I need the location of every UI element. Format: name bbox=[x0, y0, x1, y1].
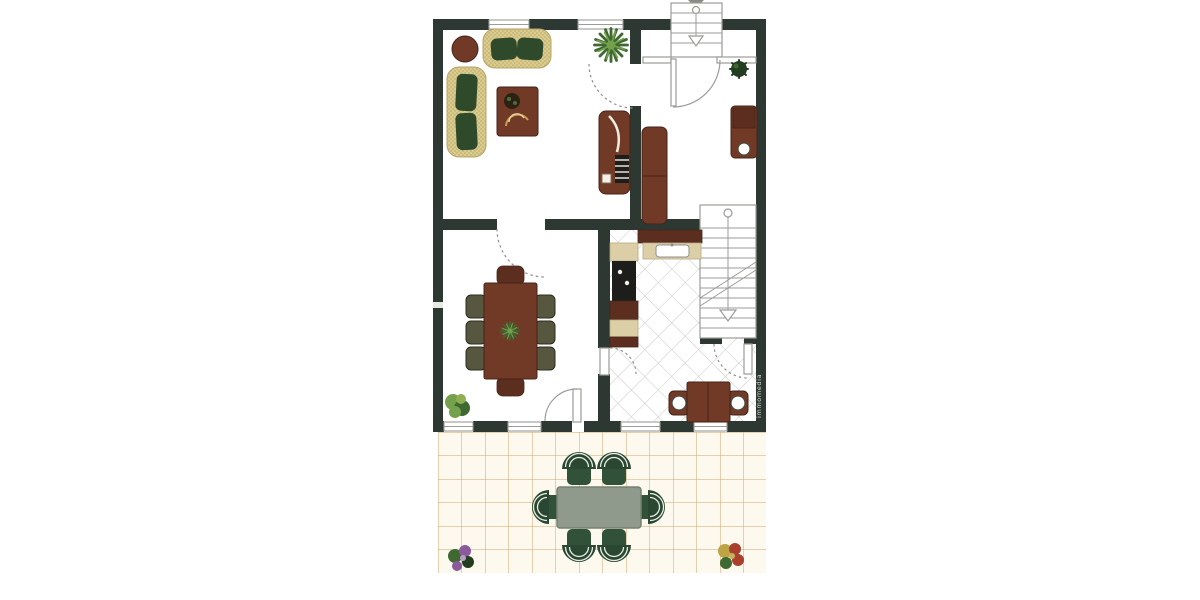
dining-patio-door-arc bbox=[545, 389, 577, 421]
exterior-stairs bbox=[671, 0, 722, 57]
window-bottom-1 bbox=[444, 422, 473, 431]
flower-pot-right bbox=[718, 543, 744, 569]
round-side-table bbox=[452, 36, 478, 62]
wall-left bbox=[433, 19, 443, 432]
garden-chair-bottom-left bbox=[562, 529, 596, 562]
wall-living-dining-left bbox=[443, 219, 497, 230]
window-bottom-3 bbox=[621, 422, 660, 431]
dining-chair-bottom bbox=[497, 377, 524, 396]
dining-chair-right-1 bbox=[535, 295, 555, 318]
media-sideboard bbox=[599, 111, 630, 194]
wall-living-hall bbox=[630, 106, 641, 219]
kitchen-counter-top-wall bbox=[638, 230, 702, 243]
dining-chair-right-3 bbox=[535, 347, 555, 370]
wall-dining-kitchen-lower bbox=[598, 374, 610, 421]
window-top-2 bbox=[578, 20, 623, 29]
floor-plan-drawing: immomedia bbox=[0, 0, 1200, 600]
hall-plant bbox=[730, 60, 748, 78]
hall-desk bbox=[731, 106, 757, 158]
dining-kitchen-door-leaf bbox=[600, 348, 609, 375]
watermark-text: immomedia bbox=[755, 374, 763, 418]
wall-bottom-5 bbox=[660, 421, 694, 432]
wall-bottom-6 bbox=[727, 421, 766, 432]
interior-staircase bbox=[700, 205, 756, 338]
sideboard-stripe-panel bbox=[615, 155, 629, 183]
decor-bowl bbox=[504, 93, 520, 109]
understair-door-leaf bbox=[744, 344, 752, 374]
garden-chair-bottom-right bbox=[597, 529, 631, 562]
living-hall-door-arc bbox=[589, 64, 633, 108]
coffee-table bbox=[497, 87, 538, 136]
wall-bottom-1 bbox=[433, 421, 444, 432]
dining-patio-door-leaf bbox=[573, 389, 581, 422]
garden-chair-top-left bbox=[562, 452, 596, 485]
dining-chair-top bbox=[497, 266, 524, 285]
breakfast-seat-right bbox=[731, 396, 745, 410]
wall-bottom-4 bbox=[584, 421, 621, 432]
wall-left-vent-notch bbox=[433, 302, 443, 308]
wall-living-dining-right bbox=[545, 219, 700, 230]
dining-chair-right-2 bbox=[535, 321, 555, 344]
dining-chair-left-2 bbox=[466, 321, 486, 344]
patio bbox=[438, 432, 766, 573]
stairs-start-marker bbox=[693, 7, 700, 14]
dining-chair-left-3 bbox=[466, 347, 486, 370]
dining-chair-left-1 bbox=[466, 295, 486, 318]
kitchen-counter-left-run bbox=[610, 243, 638, 347]
entry-partition-left bbox=[643, 57, 671, 63]
wall-top-2 bbox=[529, 19, 578, 30]
living-room bbox=[447, 27, 630, 194]
kitchen-sink bbox=[656, 245, 689, 257]
wall-right bbox=[756, 19, 766, 432]
window-top-1 bbox=[489, 20, 529, 29]
staircase-start-marker bbox=[724, 209, 732, 217]
entry-door-leaf bbox=[671, 59, 676, 106]
kitchen-faucet bbox=[671, 244, 674, 247]
hall-stool bbox=[738, 143, 750, 155]
scanned-floor-plan-page: immomedia bbox=[0, 0, 1200, 600]
dining-corner-plant bbox=[445, 394, 470, 418]
kitchen-cooktop bbox=[612, 261, 636, 301]
wall-bottom-2 bbox=[473, 421, 508, 432]
breakfast-seat-left bbox=[672, 396, 686, 410]
wall-dining-kitchen-upper bbox=[598, 230, 610, 348]
two-seat-sofa bbox=[483, 29, 551, 68]
garden-chair-top-right bbox=[597, 452, 631, 485]
entry-door-swing-arc bbox=[673, 60, 720, 107]
living-room-plant bbox=[593, 27, 629, 63]
window-bottom-2 bbox=[508, 422, 541, 431]
garden-table bbox=[557, 487, 641, 528]
wall-bottom-3 bbox=[541, 421, 572, 432]
patio-sliding-door bbox=[694, 422, 727, 431]
entry-hall bbox=[642, 60, 757, 224]
wall-living-hall-stub bbox=[630, 19, 641, 64]
three-seat-sofa bbox=[447, 67, 486, 157]
dining-room bbox=[445, 266, 555, 418]
